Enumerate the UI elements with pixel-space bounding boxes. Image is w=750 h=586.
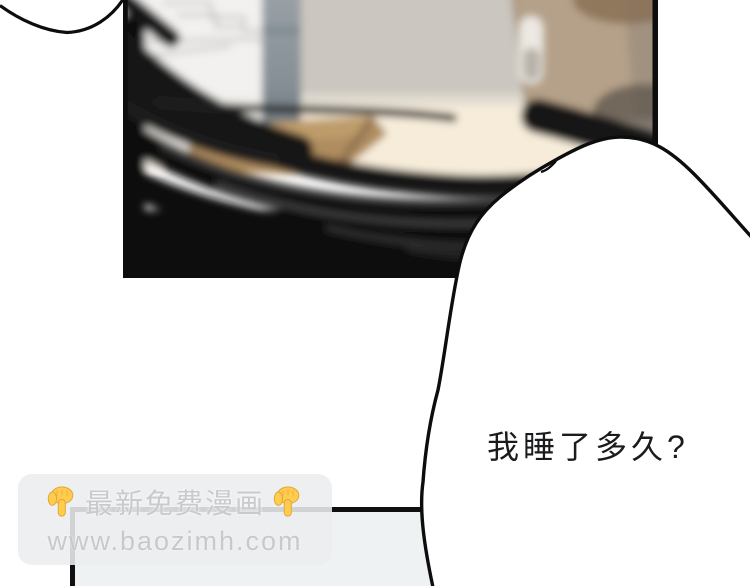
speech-bubble-text: 我睡了多久? xyxy=(487,429,689,465)
point-down-emoji-icon xyxy=(273,485,303,519)
cut-bubble-arc xyxy=(0,0,124,33)
watermark-url: www.baozimh.com xyxy=(47,527,302,556)
watermark-box: 最新免费漫画 www.baozimh.com xyxy=(18,474,332,565)
watermark-title-row: 最新免费漫画 xyxy=(47,485,303,519)
watermark-title: 最新免费漫画 xyxy=(85,482,265,522)
point-down-emoji-icon xyxy=(47,485,77,519)
speech-bubble xyxy=(422,137,750,586)
comic-page: { "comic": { "speech_bubble": { "text": … xyxy=(0,0,750,586)
